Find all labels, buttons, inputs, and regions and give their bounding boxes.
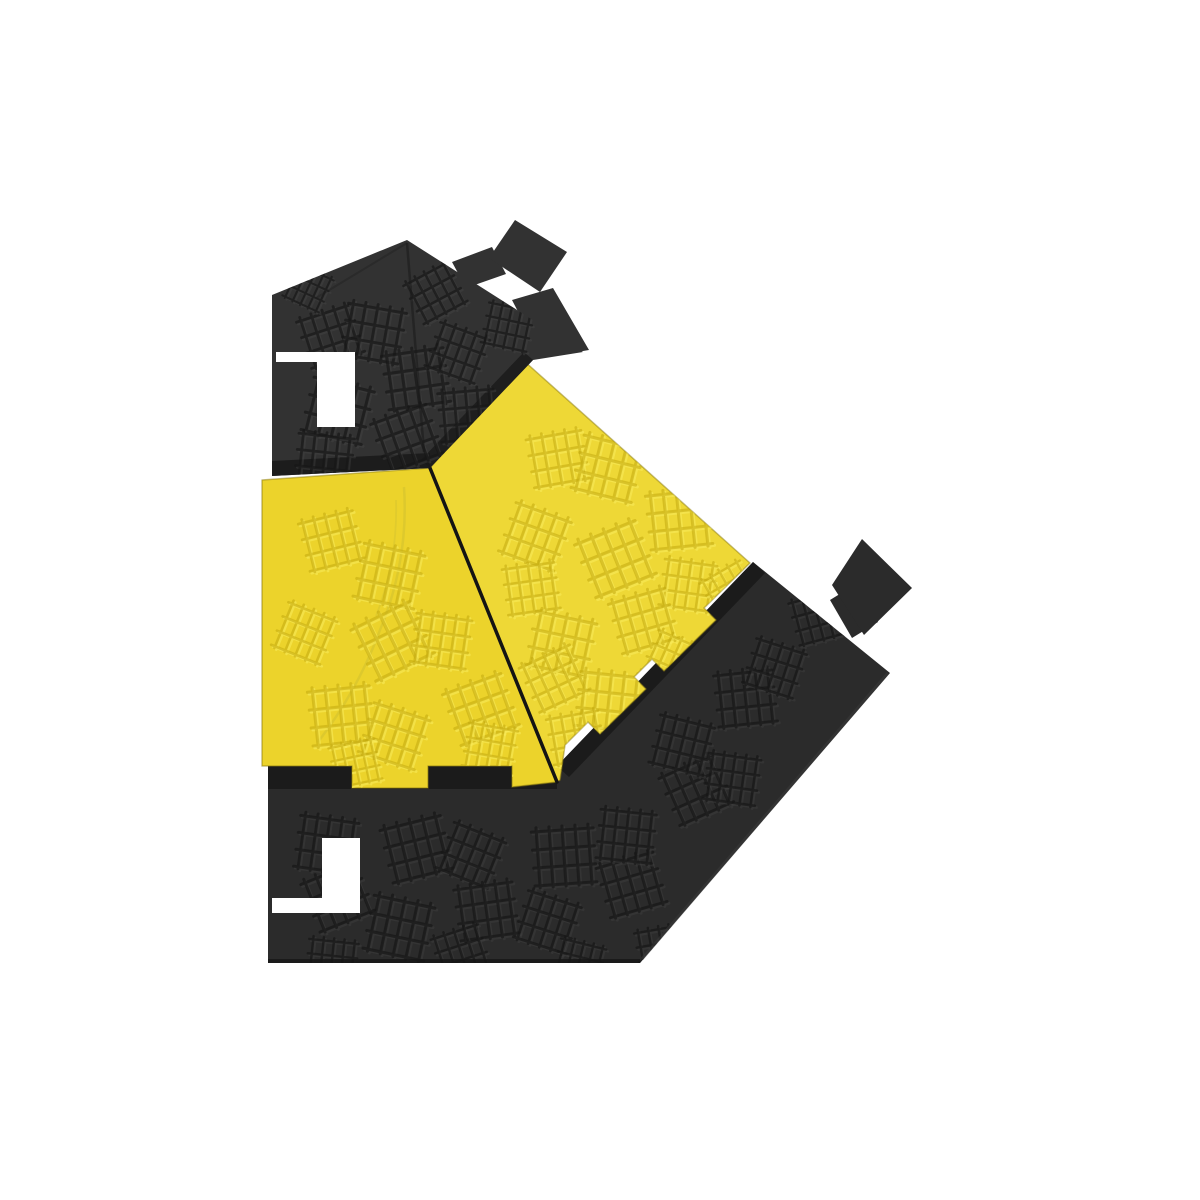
cable-protector-corner-illustration [0,0,1200,1200]
product-photo [0,0,1200,1200]
